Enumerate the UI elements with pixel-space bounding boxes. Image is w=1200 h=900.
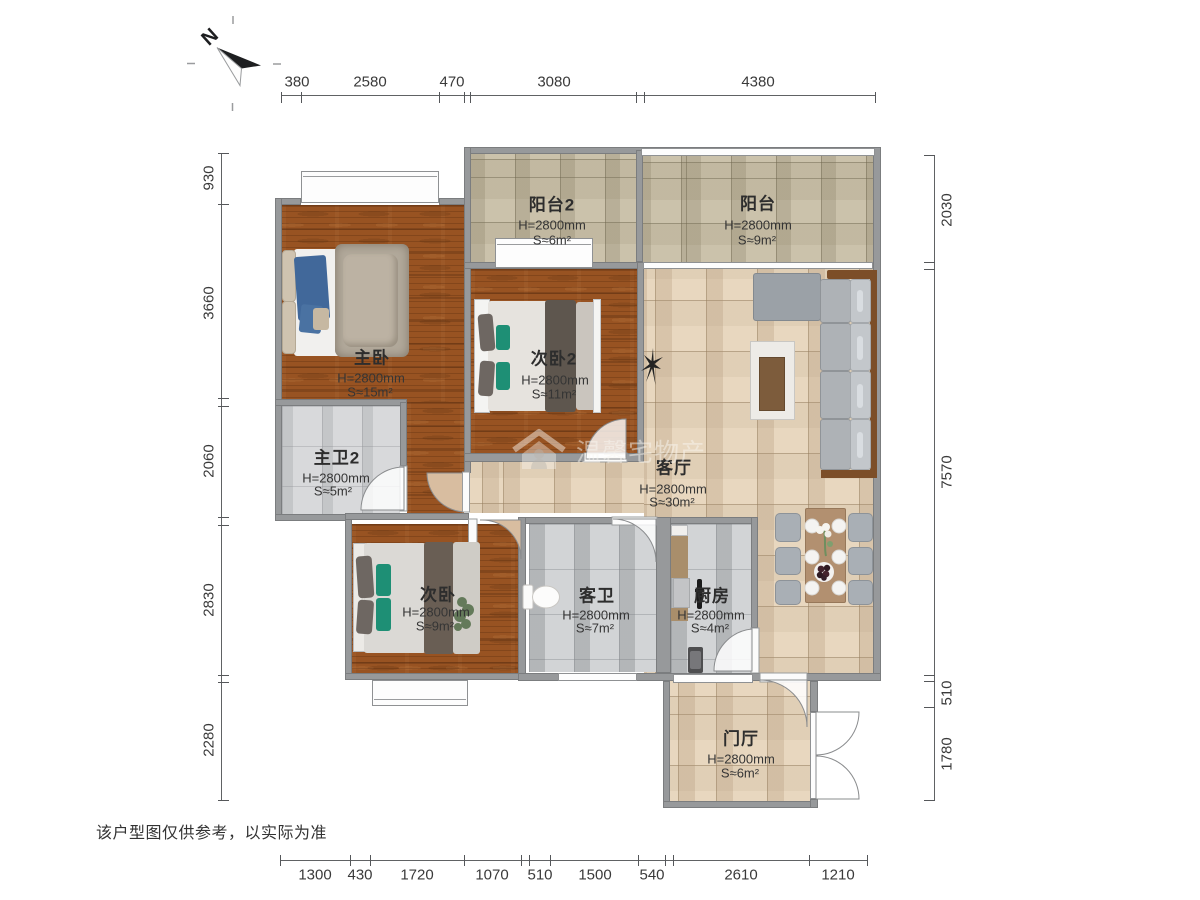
svg-text:N: N — [197, 24, 222, 50]
